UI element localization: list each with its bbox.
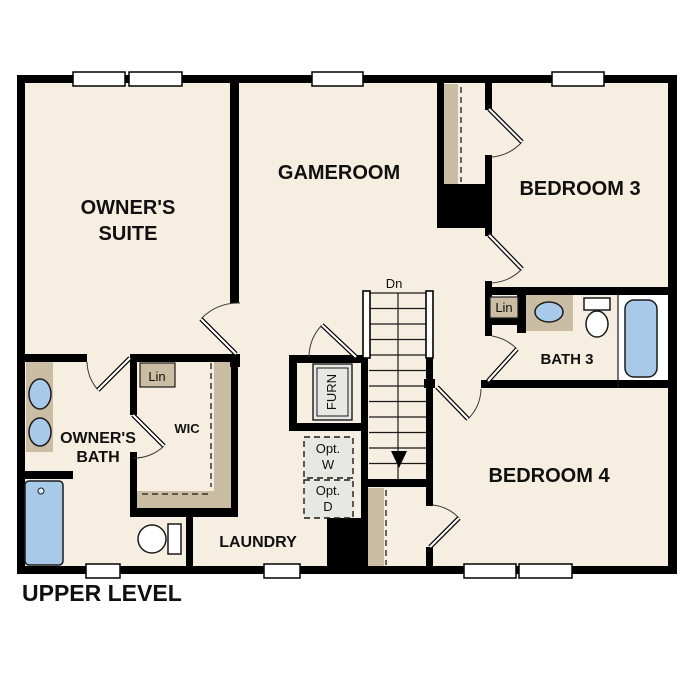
wic-label: WIC [174,421,200,436]
floor-plan-page: OWNER'S SUITE GAMEROOM BEDROOM 3 BATH 3 … [0,0,687,687]
bedroom3-closet-shelf [444,84,458,184]
owners-bath-label-line2: BATH [76,449,119,466]
opt-washer-label-line1: Opt. [316,441,341,456]
stairs-dn-label: Dn [386,276,403,291]
wall-bath3-top [485,287,668,295]
bath3-label: BATH 3 [540,351,593,368]
wall-bedroom3-west-b [485,155,492,188]
window-owners-bath [86,564,120,578]
window-owners-suite-2 [129,72,182,86]
upper-level-floor-plan: OWNER'S SUITE GAMEROOM BEDROOM 3 BATH 3 … [0,0,687,687]
wall-suite-bath-right [130,354,240,362]
wall-wic-left-upper [130,354,137,415]
stair-railing-right [426,291,433,358]
bedroom4-closet-shelf [368,488,384,567]
wall-owners-bath-stub [17,471,73,479]
owners-bath-shower [25,481,63,565]
wic-shelf-right [214,362,231,511]
bath3-sink [535,302,563,322]
lin-bath3-label: Lin [495,300,512,315]
bath3-tub [625,300,657,377]
laundry-label: LAUNDRY [219,534,297,551]
owners-bath-sink-1 [29,379,51,409]
wall-bedroom3-west-a [485,83,492,110]
wall-mass-laundry [327,518,362,574]
opt-dryer-label-line2: D [323,499,332,514]
shower-drain [38,488,44,494]
wall-wic-right [231,354,238,517]
gameroom-label: GAMEROOM [278,162,400,184]
wall-mass-bedroom3 [437,184,492,228]
wall-furn-left [289,355,297,431]
bath3-toilet [584,298,610,337]
owners-suite-label-line2: SUITE [99,223,158,245]
window-bedroom4-2 [519,564,572,578]
wall-bath-laundry [186,508,193,574]
opt-washer-label-line2: W [322,457,335,472]
bedroom3-label: BEDROOM 3 [519,178,640,200]
wall-gameroom-closet [437,83,444,187]
window-bedroom3 [552,72,604,86]
wall-stair-bottom [361,479,426,487]
page-title: UPPER LEVEL [22,580,182,606]
window-gameroom [312,72,363,86]
furnace-label: FURN [324,374,339,410]
window-owners-suite-1 [73,72,125,86]
wall-wic-bottom [130,508,238,517]
wall-bath3-bottom [481,380,668,388]
opt-dryer-label-line1: Opt. [316,483,341,498]
owners-suite-label-line1: OWNER'S [81,197,176,219]
wall-furn-bottom [289,423,368,431]
lin-wic-label: Lin [148,369,165,384]
wall-suite-bath-left [17,354,87,362]
exterior-wall-right [668,75,677,574]
wall-stair-left [361,357,368,574]
bedroom4-label: BEDROOM 4 [488,465,610,487]
wall-post-hall [424,379,435,388]
wall-wic-left-lower [130,452,137,510]
window-laundry [264,564,300,578]
window-bedroom4-1 [464,564,516,578]
owners-bath-sink-2 [29,418,51,446]
wall-suite-gameroom [230,83,239,303]
wall-bedroom4-closet-stub [426,547,433,574]
stair-railing-left [363,291,370,358]
exterior-wall-left [17,75,25,574]
owners-bath-toilet [138,524,181,554]
owners-bath-label-line1: OWNER'S [60,430,136,447]
